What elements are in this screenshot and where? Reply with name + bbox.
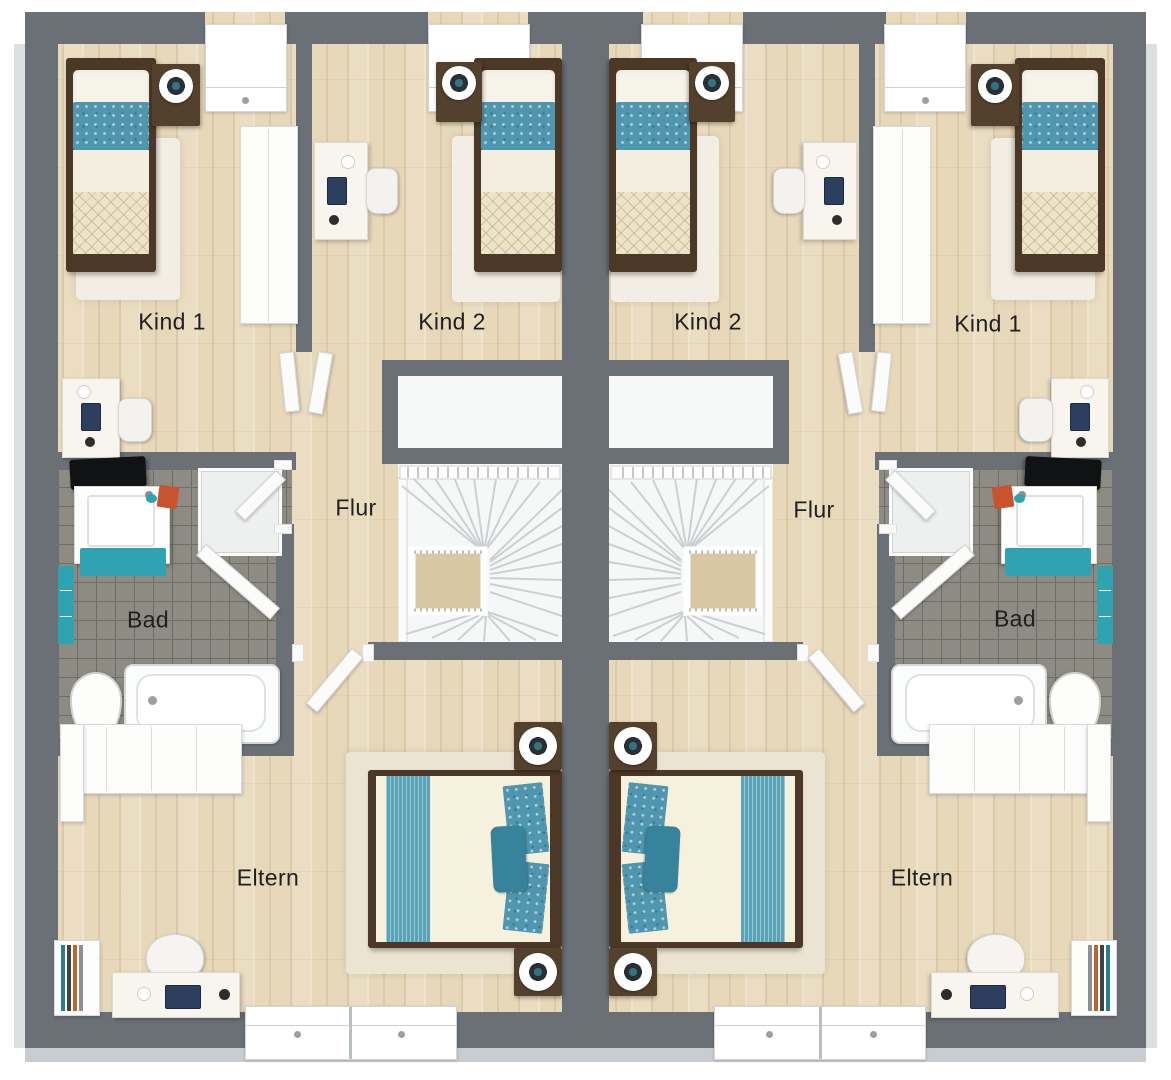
label-eltern-right: Eltern: [891, 865, 953, 892]
label-kind2-left: Kind 2: [418, 309, 486, 336]
label-bad-right: Bad: [994, 606, 1036, 633]
wall-top-b: [285, 12, 428, 44]
bed-kind1: [66, 58, 156, 272]
nightstand-eltern-top: [609, 722, 657, 770]
bed-kind2: [609, 58, 697, 272]
wall-left-exterior: [25, 12, 58, 1048]
chair-kind1: [118, 398, 152, 442]
wall-left-outer-face: [14, 44, 25, 1048]
wardrobe-eltern-return: [1087, 724, 1111, 822]
desk-eltern: [931, 972, 1059, 1018]
bed-accent-pillow: [643, 825, 680, 893]
desk-kind1: [1051, 378, 1109, 458]
laptop-icon: [81, 403, 101, 431]
bed-sheet: [616, 150, 690, 192]
label-flur-left: Flur: [335, 495, 376, 522]
lamp-kind2: [695, 66, 729, 100]
lamp-eltern-bottom: [519, 953, 557, 991]
door-jamb: [879, 460, 897, 470]
bed-double-eltern: [368, 770, 562, 948]
wall-landing-top: [382, 360, 562, 376]
mug-icon: [1080, 385, 1094, 399]
soap-dish: [146, 494, 157, 503]
wall-landing-bottom: [609, 448, 789, 464]
nightstand-kind1: [152, 64, 200, 126]
door-jamb: [797, 644, 809, 662]
bed-accent-pillow: [490, 825, 527, 893]
towel-orange: [992, 485, 1015, 510]
wall-stair-bottom: [368, 642, 562, 660]
bed-blanket-blue: [73, 102, 149, 150]
bed-quilt: [616, 192, 690, 254]
door-jamb: [362, 644, 374, 662]
wardrobe-eltern-return: [60, 724, 84, 822]
stair-landing: [388, 374, 562, 452]
bed-quilt: [481, 192, 555, 254]
lamp-kind2: [442, 66, 476, 100]
chair-kind2: [366, 168, 398, 214]
laptop-icon: [165, 985, 201, 1009]
mug-icon: [1020, 987, 1034, 1001]
bed-kind2: [474, 58, 562, 272]
desk-lamp-icon: [219, 989, 230, 1000]
mug-icon: [816, 155, 830, 169]
window-kind1: [884, 24, 966, 112]
desk-kind1: [62, 378, 120, 458]
bathroom-mirror: [69, 456, 146, 490]
wall-bottom-b: [455, 1012, 586, 1048]
lamp-kind1: [978, 69, 1012, 103]
door-jamb: [274, 524, 292, 534]
desk-lamp-icon: [1076, 437, 1086, 447]
bed-quilt: [1022, 192, 1098, 254]
desk-lamp-icon: [85, 437, 95, 447]
wall-landing-bottom: [382, 448, 562, 464]
door-jamb: [867, 644, 879, 662]
towel-orange: [157, 485, 180, 510]
window-eltern-pair: [714, 1006, 926, 1060]
door-jamb: [292, 644, 304, 662]
bed-double-eltern: [609, 770, 803, 948]
desk-lamp-icon: [329, 215, 339, 225]
wardrobe-eltern: [60, 724, 242, 794]
lamp-eltern-top: [519, 727, 557, 765]
wall-party-center: [562, 12, 586, 1048]
laptop-icon: [824, 177, 844, 205]
unit-left: [0, 0, 586, 1080]
laptop-icon: [327, 177, 347, 205]
wardrobe-eltern: [929, 724, 1111, 794]
nightstand-eltern-top: [514, 722, 562, 770]
wardrobe-kind1: [240, 126, 298, 324]
wall-top-b: [743, 12, 886, 44]
label-kind1-left: Kind 1: [138, 309, 206, 336]
wall-stair-bottom: [609, 642, 803, 660]
unit-right: [585, 0, 1171, 1080]
bed-sheet: [481, 150, 555, 192]
soap-dish: [1014, 494, 1025, 503]
desk-eltern: [112, 972, 240, 1018]
chair-kind1: [1019, 398, 1053, 442]
stair-landing: [609, 374, 783, 452]
wardrobe-kind1: [873, 126, 931, 324]
laptop-icon: [970, 985, 1006, 1009]
lamp-eltern-bottom: [614, 953, 652, 991]
nightstand-kind2: [689, 62, 735, 122]
nightstand-kind2: [436, 62, 482, 122]
bed-sheet: [73, 150, 149, 192]
bath-mat: [80, 548, 166, 576]
mug-icon: [341, 155, 355, 169]
chair-kind2: [773, 168, 805, 214]
wall-kind1-kind2-divider: [296, 44, 312, 352]
tub-faucet-icon: [1014, 696, 1023, 705]
label-eltern-left: Eltern: [237, 865, 299, 892]
label-kind2-right: Kind 2: [674, 309, 742, 336]
mug-icon: [77, 385, 91, 399]
wall-landing-top: [609, 360, 789, 376]
bookshelf-eltern: [1071, 940, 1117, 1016]
nightstand-eltern-bottom: [514, 948, 562, 996]
lamp-kind1: [159, 69, 193, 103]
tub-faucet-icon: [148, 696, 157, 705]
bed-blanket-blue: [616, 102, 690, 150]
towel-rail: [1097, 566, 1113, 644]
wall-left-exterior: [1113, 12, 1146, 1048]
staircase: [609, 464, 773, 642]
window-kind1: [205, 24, 287, 112]
bed-runner-teal: [386, 776, 430, 942]
label-flur-right: Flur: [793, 497, 834, 524]
lamp-eltern-top: [614, 727, 652, 765]
nightstand-kind1: [971, 64, 1019, 126]
bookshelf-eltern: [54, 940, 100, 1016]
bathroom-mirror: [1024, 456, 1101, 490]
desk-lamp-icon: [832, 215, 842, 225]
nightstand-eltern-bottom: [609, 948, 657, 996]
wall-left-outer-face: [1146, 44, 1157, 1048]
bed-runner-teal: [741, 776, 785, 942]
window-eltern-pair: [245, 1006, 457, 1060]
desk-lamp-icon: [941, 989, 952, 1000]
bath-mat: [1005, 548, 1091, 576]
mug-icon: [137, 987, 151, 1001]
towel-rail: [58, 566, 74, 644]
bed-blanket-blue: [1022, 102, 1098, 150]
floorplan: Kind 1 Kind 2 Kind 2 Kind 1 Flur Flur Ba…: [0, 0, 1171, 1080]
label-bad-left: Bad: [127, 607, 169, 634]
door-jamb: [274, 460, 292, 470]
door-jamb: [879, 524, 897, 534]
desk-kind2: [803, 142, 857, 240]
bed-blanket-blue: [481, 102, 555, 150]
laptop-icon: [1070, 403, 1090, 431]
staircase: [398, 464, 562, 642]
wall-bottom-b: [585, 1012, 716, 1048]
wall-landing-left: [382, 360, 398, 464]
bed-sheet: [1022, 150, 1098, 192]
wall-party-center: [585, 12, 609, 1048]
bed-kind1: [1015, 58, 1105, 272]
desk-kind2: [314, 142, 368, 240]
wall-landing-right: [773, 360, 789, 464]
bed-quilt: [73, 192, 149, 254]
label-kind1-right: Kind 1: [954, 311, 1022, 338]
